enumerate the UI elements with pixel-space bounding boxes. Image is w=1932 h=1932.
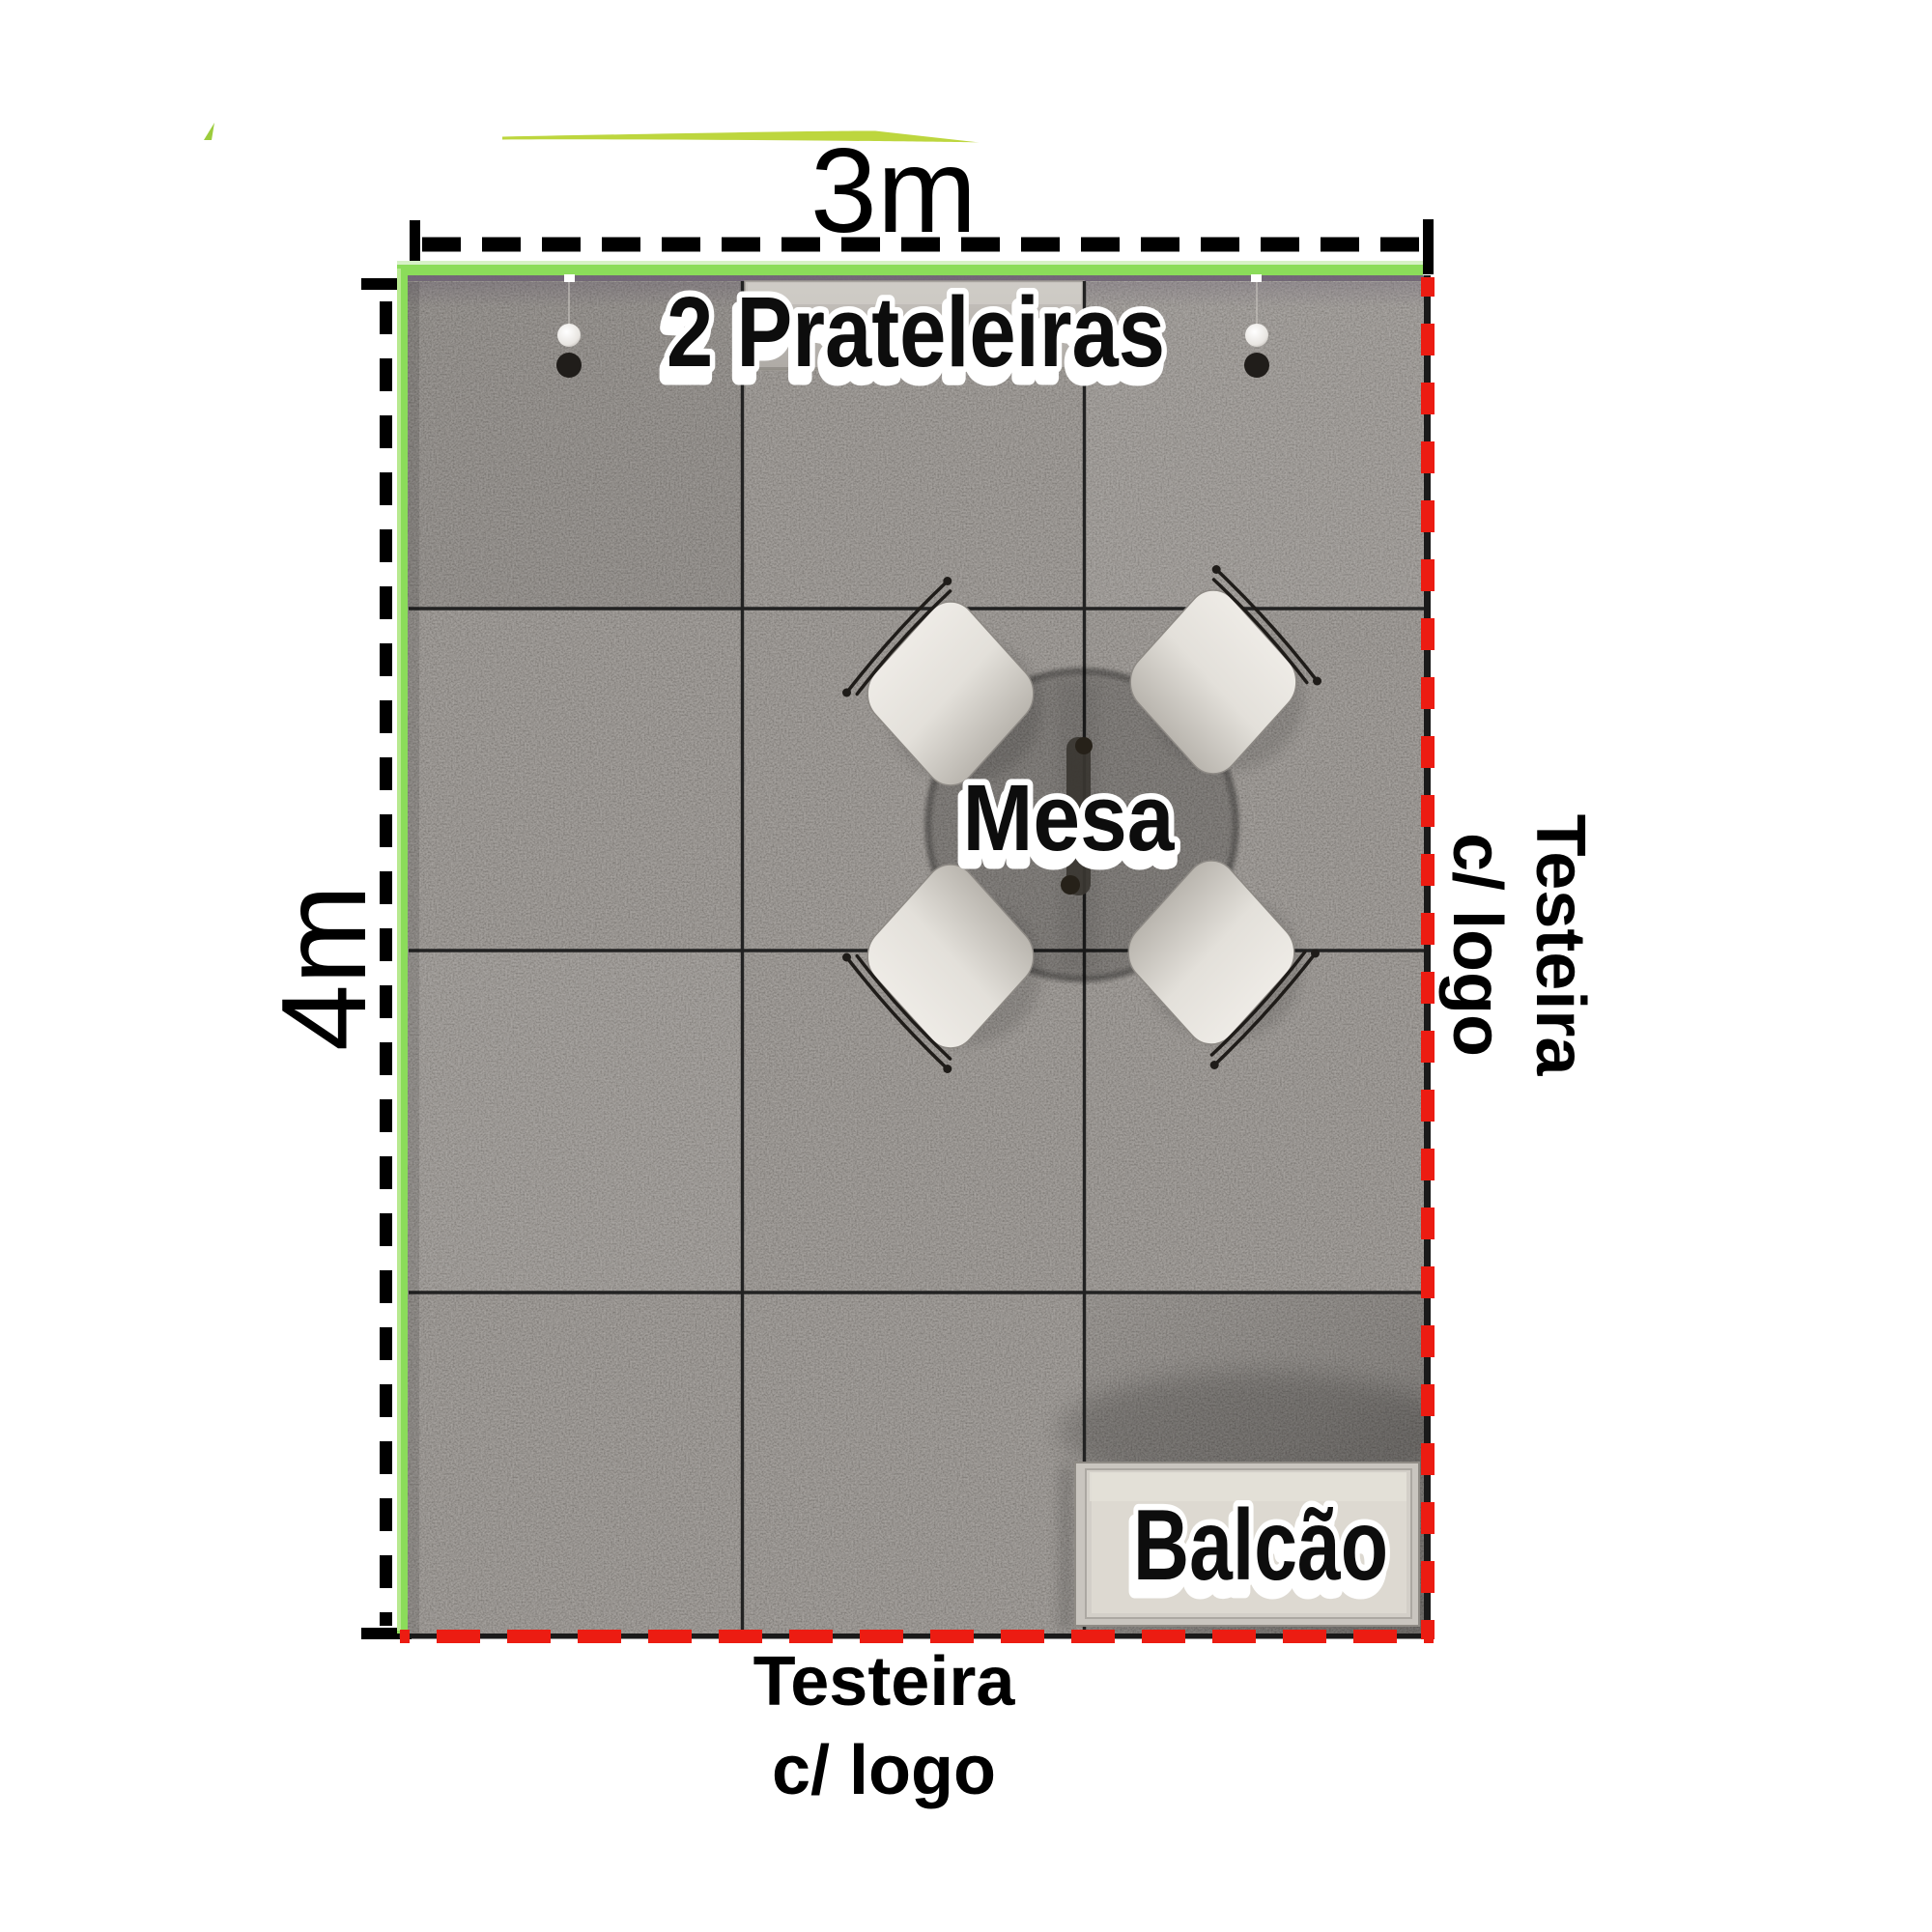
svg-text:4m: 4m — [258, 885, 391, 1051]
svg-text:3m: 3m — [810, 125, 977, 258]
svg-text:c/ logo: c/ logo — [772, 1732, 996, 1809]
svg-text:Mesa: Mesa — [963, 765, 1176, 870]
svg-text:Testeira: Testeira — [753, 1643, 1016, 1720]
svg-text:Balcão: Balcão — [1133, 1490, 1388, 1602]
svg-text:2 Prateleiras: 2 Prateleiras — [667, 276, 1165, 387]
